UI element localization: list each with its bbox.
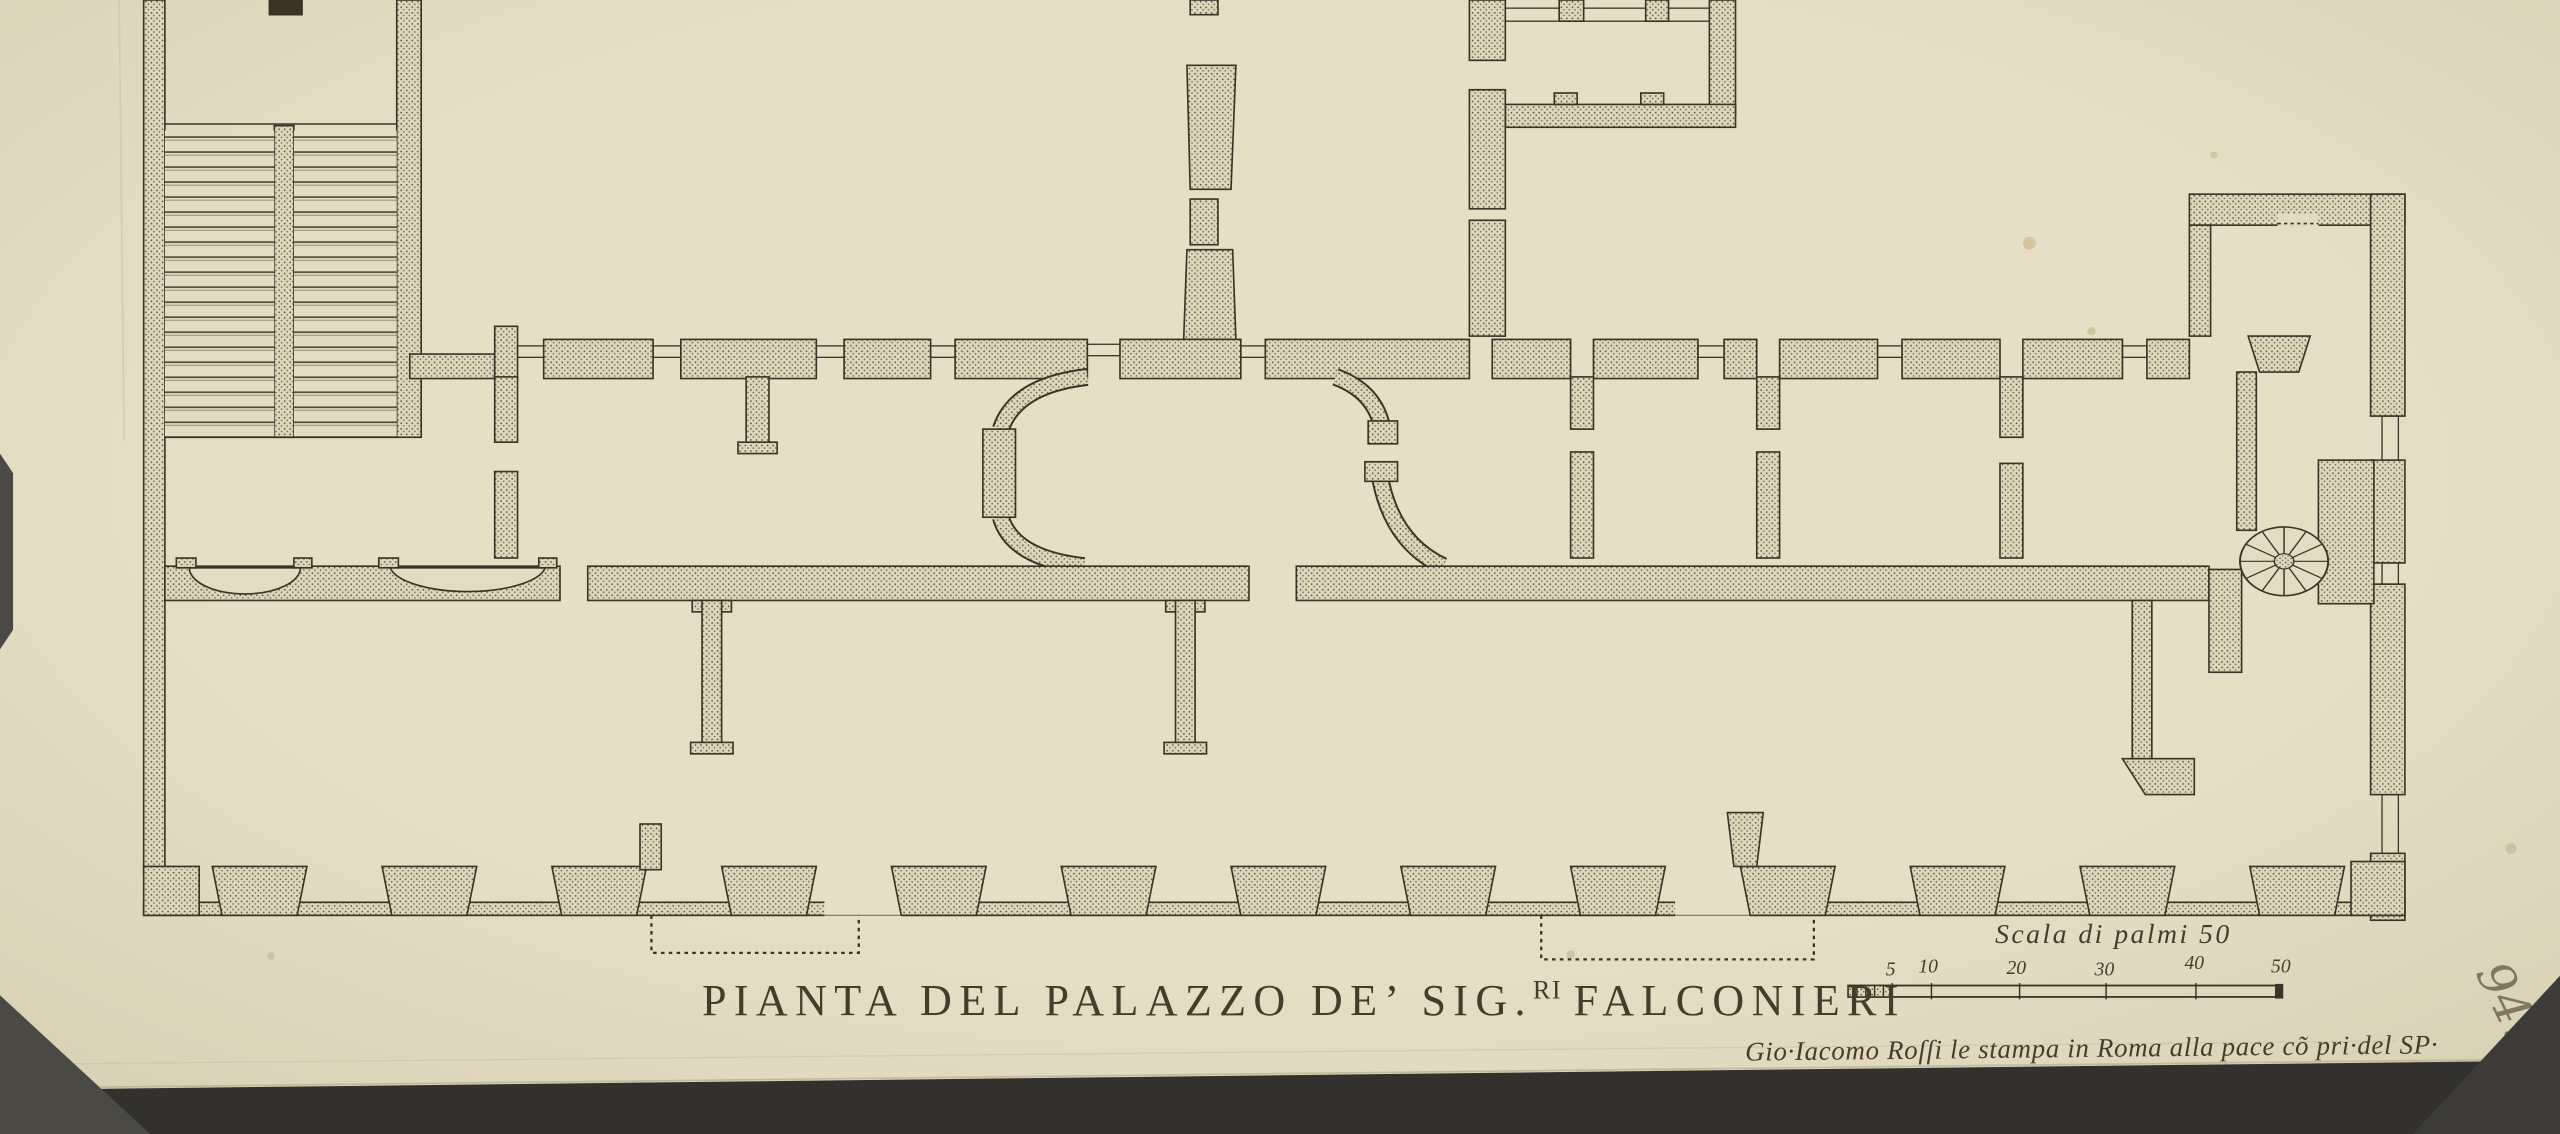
- facade-pier-stub: [1727, 813, 1763, 867]
- tick-30: 30: [2094, 960, 2115, 981]
- stair-flight-west: [165, 131, 274, 438]
- spiral-staircase: [2240, 527, 2328, 596]
- facade-pier-stub: [640, 824, 661, 870]
- facade-corner-sw: [144, 866, 200, 915]
- scale-label: Scala di palmi 50: [1995, 919, 2232, 950]
- tick-5: 5: [1886, 960, 1896, 981]
- west-outer-wall: [144, 0, 165, 876]
- tick-40: 40: [2184, 953, 2204, 974]
- stair-top-stub: [269, 0, 302, 15]
- scanned-print-photo: PIANTA DEL PALAZZO DE’ SIG.RIFALCONIERI …: [0, 0, 2560, 1134]
- backdrop-left-notch: [0, 454, 13, 650]
- tick-50: 50: [2271, 956, 2291, 977]
- facade-corner-se: [2351, 862, 2405, 916]
- stair-flight-east: [294, 131, 397, 438]
- spiral-newel: [2274, 554, 2294, 569]
- stair-spine-wall: [274, 126, 294, 438]
- tick-10: 10: [1918, 956, 1938, 977]
- plan-title: PIANTA DEL PALAZZO DE’ SIG.RIFALCONIERI: [702, 976, 1906, 1025]
- floor-plan-engraving: PIANTA DEL PALAZZO DE’ SIG.RIFALCONIERI …: [0, 0, 2560, 1134]
- tick-20: 20: [2007, 958, 2027, 979]
